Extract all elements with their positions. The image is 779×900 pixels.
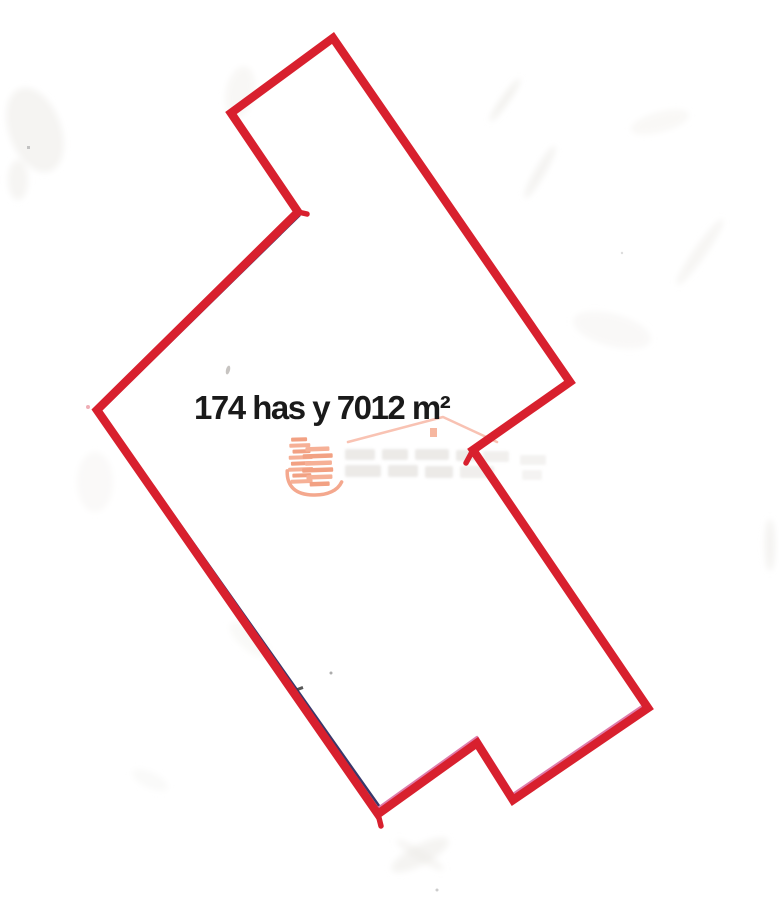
watermark-text-remnants xyxy=(345,449,546,480)
scanned-page: 174 has y 7012 m² xyxy=(0,0,779,900)
buildings-logo-icon xyxy=(286,436,342,496)
scan-smudges xyxy=(0,64,775,879)
marker-overshoot xyxy=(378,814,381,826)
parcel-underline-navy xyxy=(100,215,382,810)
parcel-sketch xyxy=(0,0,779,900)
area-label: 174 has y 7012 m² xyxy=(194,389,449,427)
marker-overshoot xyxy=(298,212,307,214)
